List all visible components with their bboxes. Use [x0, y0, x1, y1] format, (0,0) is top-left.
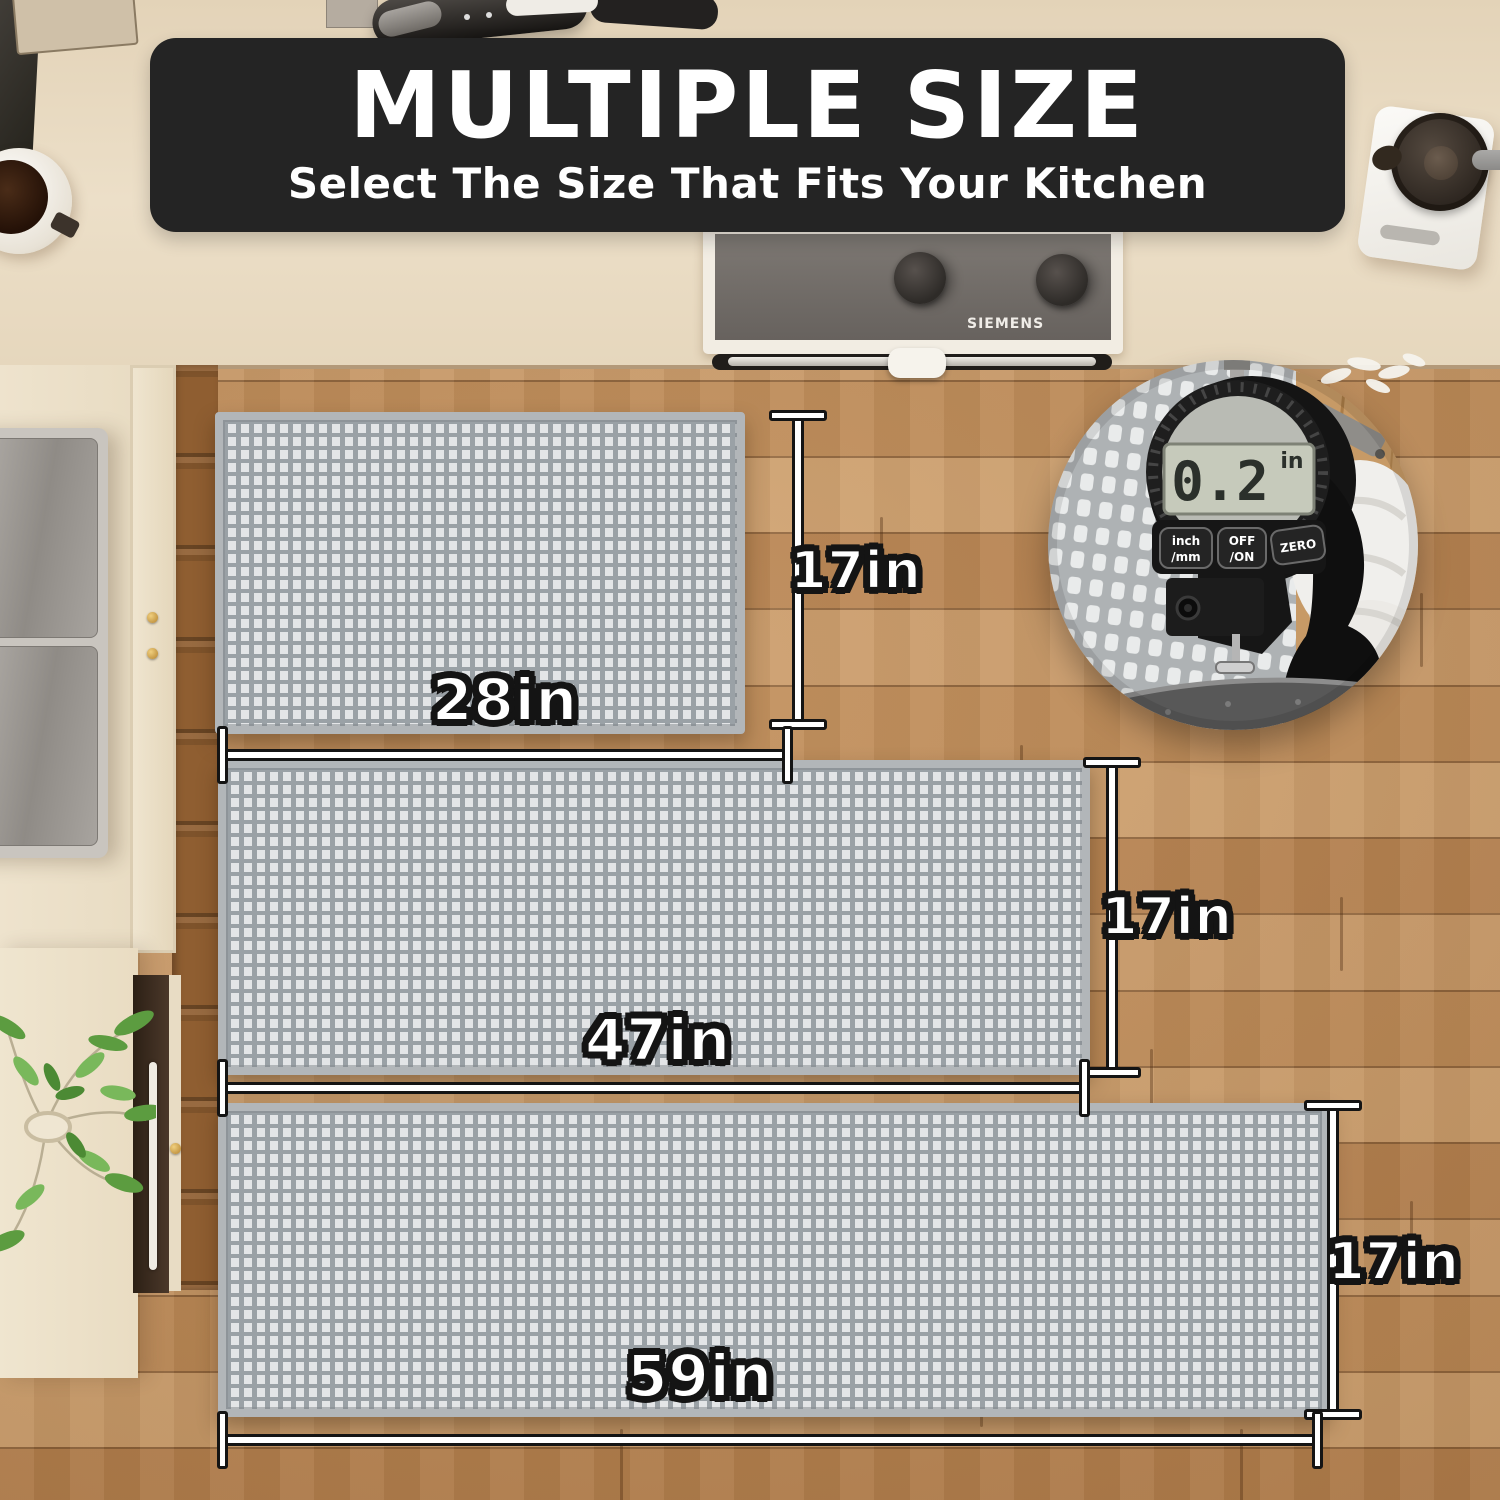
- gauge-anvil: [1216, 662, 1254, 673]
- label-height-mat1: 17in: [790, 541, 921, 601]
- counter-item: [326, 0, 378, 28]
- thickness-gauge-inset: 0.2 in inch /mm OFF /ON ZERO: [1048, 360, 1418, 730]
- label-width-mat3: 59in: [627, 1342, 773, 1410]
- cabinet-knob: [147, 648, 158, 659]
- banner-title: MULTIPLE SIZE: [349, 62, 1146, 149]
- label-height-mat2: 17in: [1101, 887, 1232, 947]
- plant-decor: [0, 985, 156, 1325]
- label-width-mat2: 47in: [585, 1006, 731, 1074]
- gauge-value: 0.2: [1171, 450, 1269, 513]
- label-height-mat3: 17in: [1328, 1232, 1459, 1292]
- svg-text:/ON: /ON: [1230, 550, 1255, 564]
- label-width-mat1: 28in: [432, 666, 578, 734]
- cabinet-door: [130, 365, 176, 953]
- stove-knob-left: [894, 252, 946, 304]
- pot-handle: [1472, 150, 1500, 170]
- mat-59x17: [218, 1103, 1330, 1417]
- svg-text:/mm: /mm: [1171, 550, 1200, 564]
- svg-text:inch: inch: [1172, 534, 1200, 548]
- stainless-fridge: [0, 428, 108, 858]
- banner-subtitle: Select The Size That Fits Your Kitchen: [288, 159, 1207, 208]
- cabinet-side-trim: [169, 975, 181, 1291]
- cabinet-knob: [147, 612, 158, 623]
- headline-banner: MULTIPLE SIZE Select The Size That Fits …: [150, 38, 1345, 232]
- gauge-unit: in: [1280, 449, 1303, 474]
- stove-panel: SIEMENS: [715, 234, 1111, 340]
- dim-line-width-mat1: [220, 749, 790, 761]
- svg-text:OFF: OFF: [1229, 534, 1256, 548]
- stove-brand-label: SIEMENS: [967, 316, 1044, 332]
- dim-line-width-mat2: [220, 1082, 1087, 1094]
- dim-line-width-mat3: [220, 1434, 1320, 1446]
- kitchen-scene: SIEMENS: [0, 0, 1500, 1500]
- cabinet-knob: [170, 1143, 181, 1154]
- stove-knob-right: [1036, 254, 1088, 306]
- oven-handle-tab: [888, 348, 946, 378]
- pot-lid-knob: [1424, 146, 1458, 180]
